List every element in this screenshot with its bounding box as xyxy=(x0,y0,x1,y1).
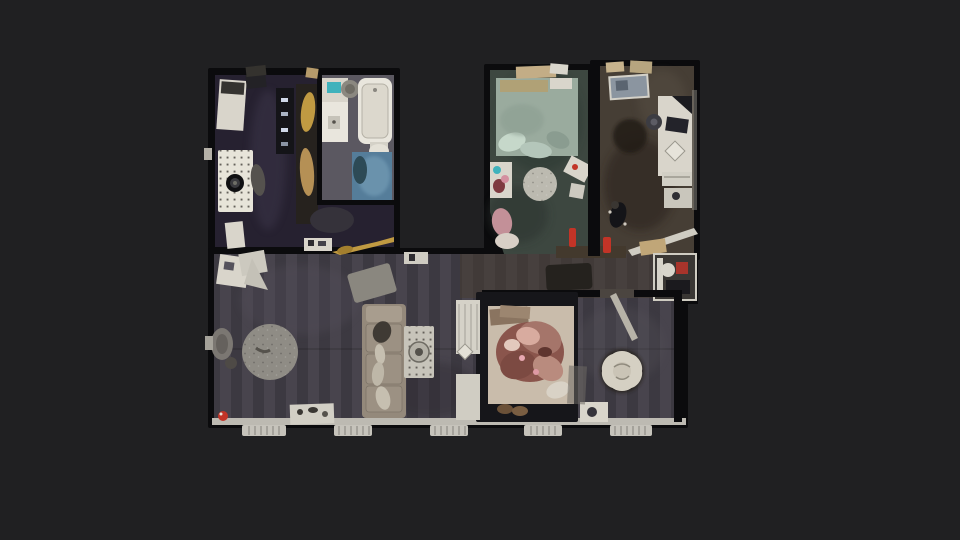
rooftop-item xyxy=(305,67,318,79)
blanket-highlight xyxy=(504,339,520,351)
wardrobe-red-clothes xyxy=(676,262,688,274)
storage-item xyxy=(672,192,680,200)
glass-item xyxy=(493,166,501,174)
wardrobe-white-clothes xyxy=(661,263,675,277)
fire-extinguisher xyxy=(569,228,576,247)
sink-drain xyxy=(332,120,336,124)
rug-speckle xyxy=(523,167,557,201)
person-hand xyxy=(608,210,611,213)
fire-extinguisher xyxy=(218,411,228,421)
blanket-pink xyxy=(519,355,525,361)
bed-pillow xyxy=(500,80,548,92)
fire-extinguisher xyxy=(603,237,611,253)
slippers xyxy=(497,404,513,414)
wall-unit-light xyxy=(281,128,288,132)
low-shelf xyxy=(662,172,692,186)
radiator-fins xyxy=(244,426,284,435)
radiator-fins xyxy=(432,426,466,435)
viewer-stage xyxy=(0,0,960,540)
bed-pillow xyxy=(500,305,531,319)
blanket-shadow xyxy=(538,347,552,357)
bed-pillow xyxy=(550,78,572,89)
wall-ledge xyxy=(204,148,212,160)
bedside-mat xyxy=(567,366,587,405)
dining-table-center xyxy=(233,181,237,185)
side-table xyxy=(225,357,237,369)
sofa xyxy=(362,304,406,418)
balcony-door-items xyxy=(630,60,653,73)
small-table xyxy=(404,252,428,264)
daybed-cushion xyxy=(616,80,629,91)
red-item xyxy=(572,164,578,170)
radiator xyxy=(524,425,562,436)
bathtub-drain xyxy=(373,88,377,92)
duvet-shadow xyxy=(500,104,544,136)
rooftop-item xyxy=(246,65,267,77)
floorplan-canvas[interactable] xyxy=(0,0,960,540)
wall-unit-light xyxy=(281,98,288,102)
shoes xyxy=(297,409,303,415)
bathtub-basin xyxy=(362,84,388,138)
office-chair-seat xyxy=(651,119,658,126)
washer-door-glass xyxy=(345,84,355,94)
wall-unit-light xyxy=(281,142,288,146)
wall-highlight xyxy=(692,90,697,210)
nightstand-slats xyxy=(458,304,478,350)
nightstand xyxy=(456,374,480,420)
radiator xyxy=(610,425,652,436)
appliance-controls xyxy=(221,81,245,95)
radiator xyxy=(430,425,468,436)
person-hand xyxy=(623,222,626,225)
kitchen-cabinet xyxy=(225,221,246,249)
radiator-fins xyxy=(612,426,650,435)
person-head xyxy=(611,201,619,209)
entry-rug xyxy=(310,207,354,233)
radiator xyxy=(334,425,372,436)
bathroom-wall xyxy=(320,200,394,205)
daybed xyxy=(609,75,648,100)
shoes xyxy=(322,411,328,417)
desk-item xyxy=(223,261,234,270)
shower-glass xyxy=(353,156,367,184)
table-item xyxy=(587,407,597,417)
wall-ledge xyxy=(205,336,213,350)
bathroom-wall xyxy=(317,75,322,205)
wall-unit-light xyxy=(281,112,288,116)
console-item xyxy=(318,241,326,246)
shoes xyxy=(308,407,318,413)
radiator-fins xyxy=(526,426,560,435)
washing-machine-drum xyxy=(327,82,341,93)
office-floor-stain xyxy=(613,119,647,153)
radiator xyxy=(242,425,286,436)
south-wall xyxy=(212,418,686,425)
console-item xyxy=(308,240,314,246)
slippers xyxy=(512,406,528,416)
sofa-back-cushion xyxy=(366,306,402,322)
balcony-door-items xyxy=(606,61,625,72)
extinguisher-top xyxy=(220,413,223,416)
shelf-slat xyxy=(664,176,690,178)
radiator-fins xyxy=(336,426,370,435)
laundry-pile xyxy=(495,233,519,249)
office-wall xyxy=(588,66,600,256)
balcony-door-items xyxy=(550,63,569,75)
armchair-seat xyxy=(216,334,228,354)
small-box xyxy=(569,183,585,199)
bedroom2-wall-right xyxy=(674,290,682,422)
table-item xyxy=(409,254,415,261)
coffee-table-mat xyxy=(404,326,434,378)
rug-speckle xyxy=(242,324,298,380)
pink-flowers xyxy=(501,175,509,183)
table-tray xyxy=(415,348,423,356)
blanket-pink xyxy=(533,369,539,375)
hallway-rug xyxy=(545,263,592,291)
